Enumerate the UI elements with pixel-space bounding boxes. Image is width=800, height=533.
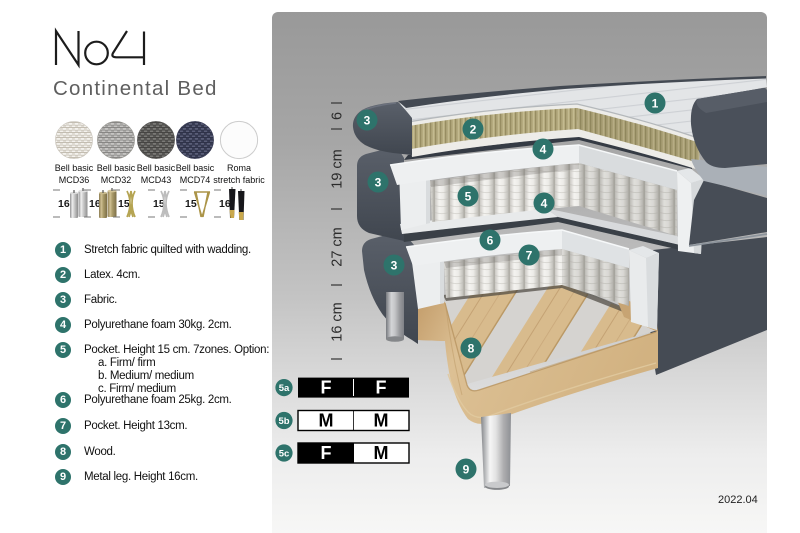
svg-text:4: 4 (541, 197, 548, 211)
svg-text:5c: 5c (279, 448, 290, 459)
svg-text:27 cm: 27 cm (330, 227, 346, 267)
svg-text:F: F (321, 378, 332, 398)
svg-text:5a: 5a (279, 383, 290, 394)
svg-text:16 cm: 16 cm (330, 302, 346, 342)
svg-text:9: 9 (463, 463, 470, 477)
svg-text:F: F (376, 378, 387, 398)
svg-text:3: 3 (391, 259, 398, 273)
svg-text:2: 2 (470, 123, 477, 137)
svg-text:6: 6 (330, 112, 346, 120)
svg-text:5b: 5b (278, 416, 289, 427)
svg-text:19 cm: 19 cm (330, 149, 346, 189)
svg-text:M: M (374, 411, 389, 431)
svg-text:F: F (321, 443, 332, 463)
svg-text:1: 1 (652, 97, 659, 111)
svg-text:M: M (374, 443, 389, 463)
svg-text:7: 7 (526, 249, 533, 263)
svg-text:3: 3 (375, 176, 382, 190)
svg-text:6: 6 (487, 234, 494, 248)
svg-text:4: 4 (540, 143, 547, 157)
svg-text:8: 8 (468, 342, 475, 356)
svg-text:5: 5 (465, 190, 472, 204)
svg-text:M: M (319, 411, 334, 431)
